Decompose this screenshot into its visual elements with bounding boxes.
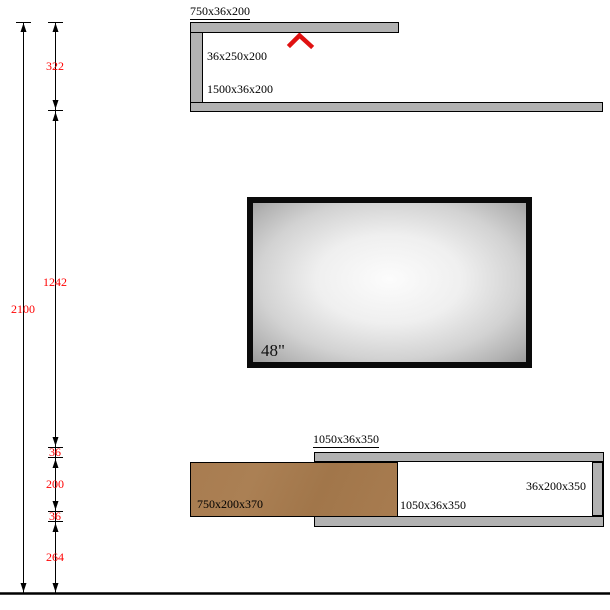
cabinet-side-panel-label: 36x200x350 xyxy=(526,480,586,493)
tv-frame: 48" xyxy=(247,197,532,368)
top-shelf-top-panel xyxy=(190,22,399,33)
cabinet-right-side-panel xyxy=(592,462,603,516)
top-shelf-bottom-panel xyxy=(190,102,603,112)
top-shelf-bottom-panel-label: 1500x36x200 xyxy=(207,83,273,96)
elevation-drawing: 750x36x200 36x250x200 1500x36x200 48" 10… xyxy=(0,0,610,610)
tv-screen xyxy=(253,203,526,362)
tv-size-label: 48" xyxy=(261,342,285,360)
dim-segment-label: 322 xyxy=(46,60,64,72)
dim-segment-label: 264 xyxy=(46,551,64,563)
top-shelf-top-panel-label: 750x36x200 xyxy=(190,5,250,20)
cabinet-drawer-front-label: 750x200x370 xyxy=(197,498,263,511)
dimension-line-segments xyxy=(48,22,63,593)
cabinet-bottom-panel xyxy=(314,516,604,527)
top-shelf-side-panel xyxy=(190,32,203,103)
dim-segment-label: 1242 xyxy=(43,276,67,288)
top-shelf-side-panel-label: 36x250x200 xyxy=(207,50,267,63)
dim-segment-label: 36 xyxy=(49,446,61,458)
cabinet-top-panel-label: 1050x36x350 xyxy=(313,433,379,448)
dim-segment-label: 36 xyxy=(49,510,61,522)
chevron-up-mark xyxy=(290,36,311,47)
dim-segment-label: 200 xyxy=(46,478,64,490)
dim-total-height-label: 2100 xyxy=(11,303,35,315)
cabinet-shelf-label: 1050x36x350 xyxy=(400,499,466,512)
